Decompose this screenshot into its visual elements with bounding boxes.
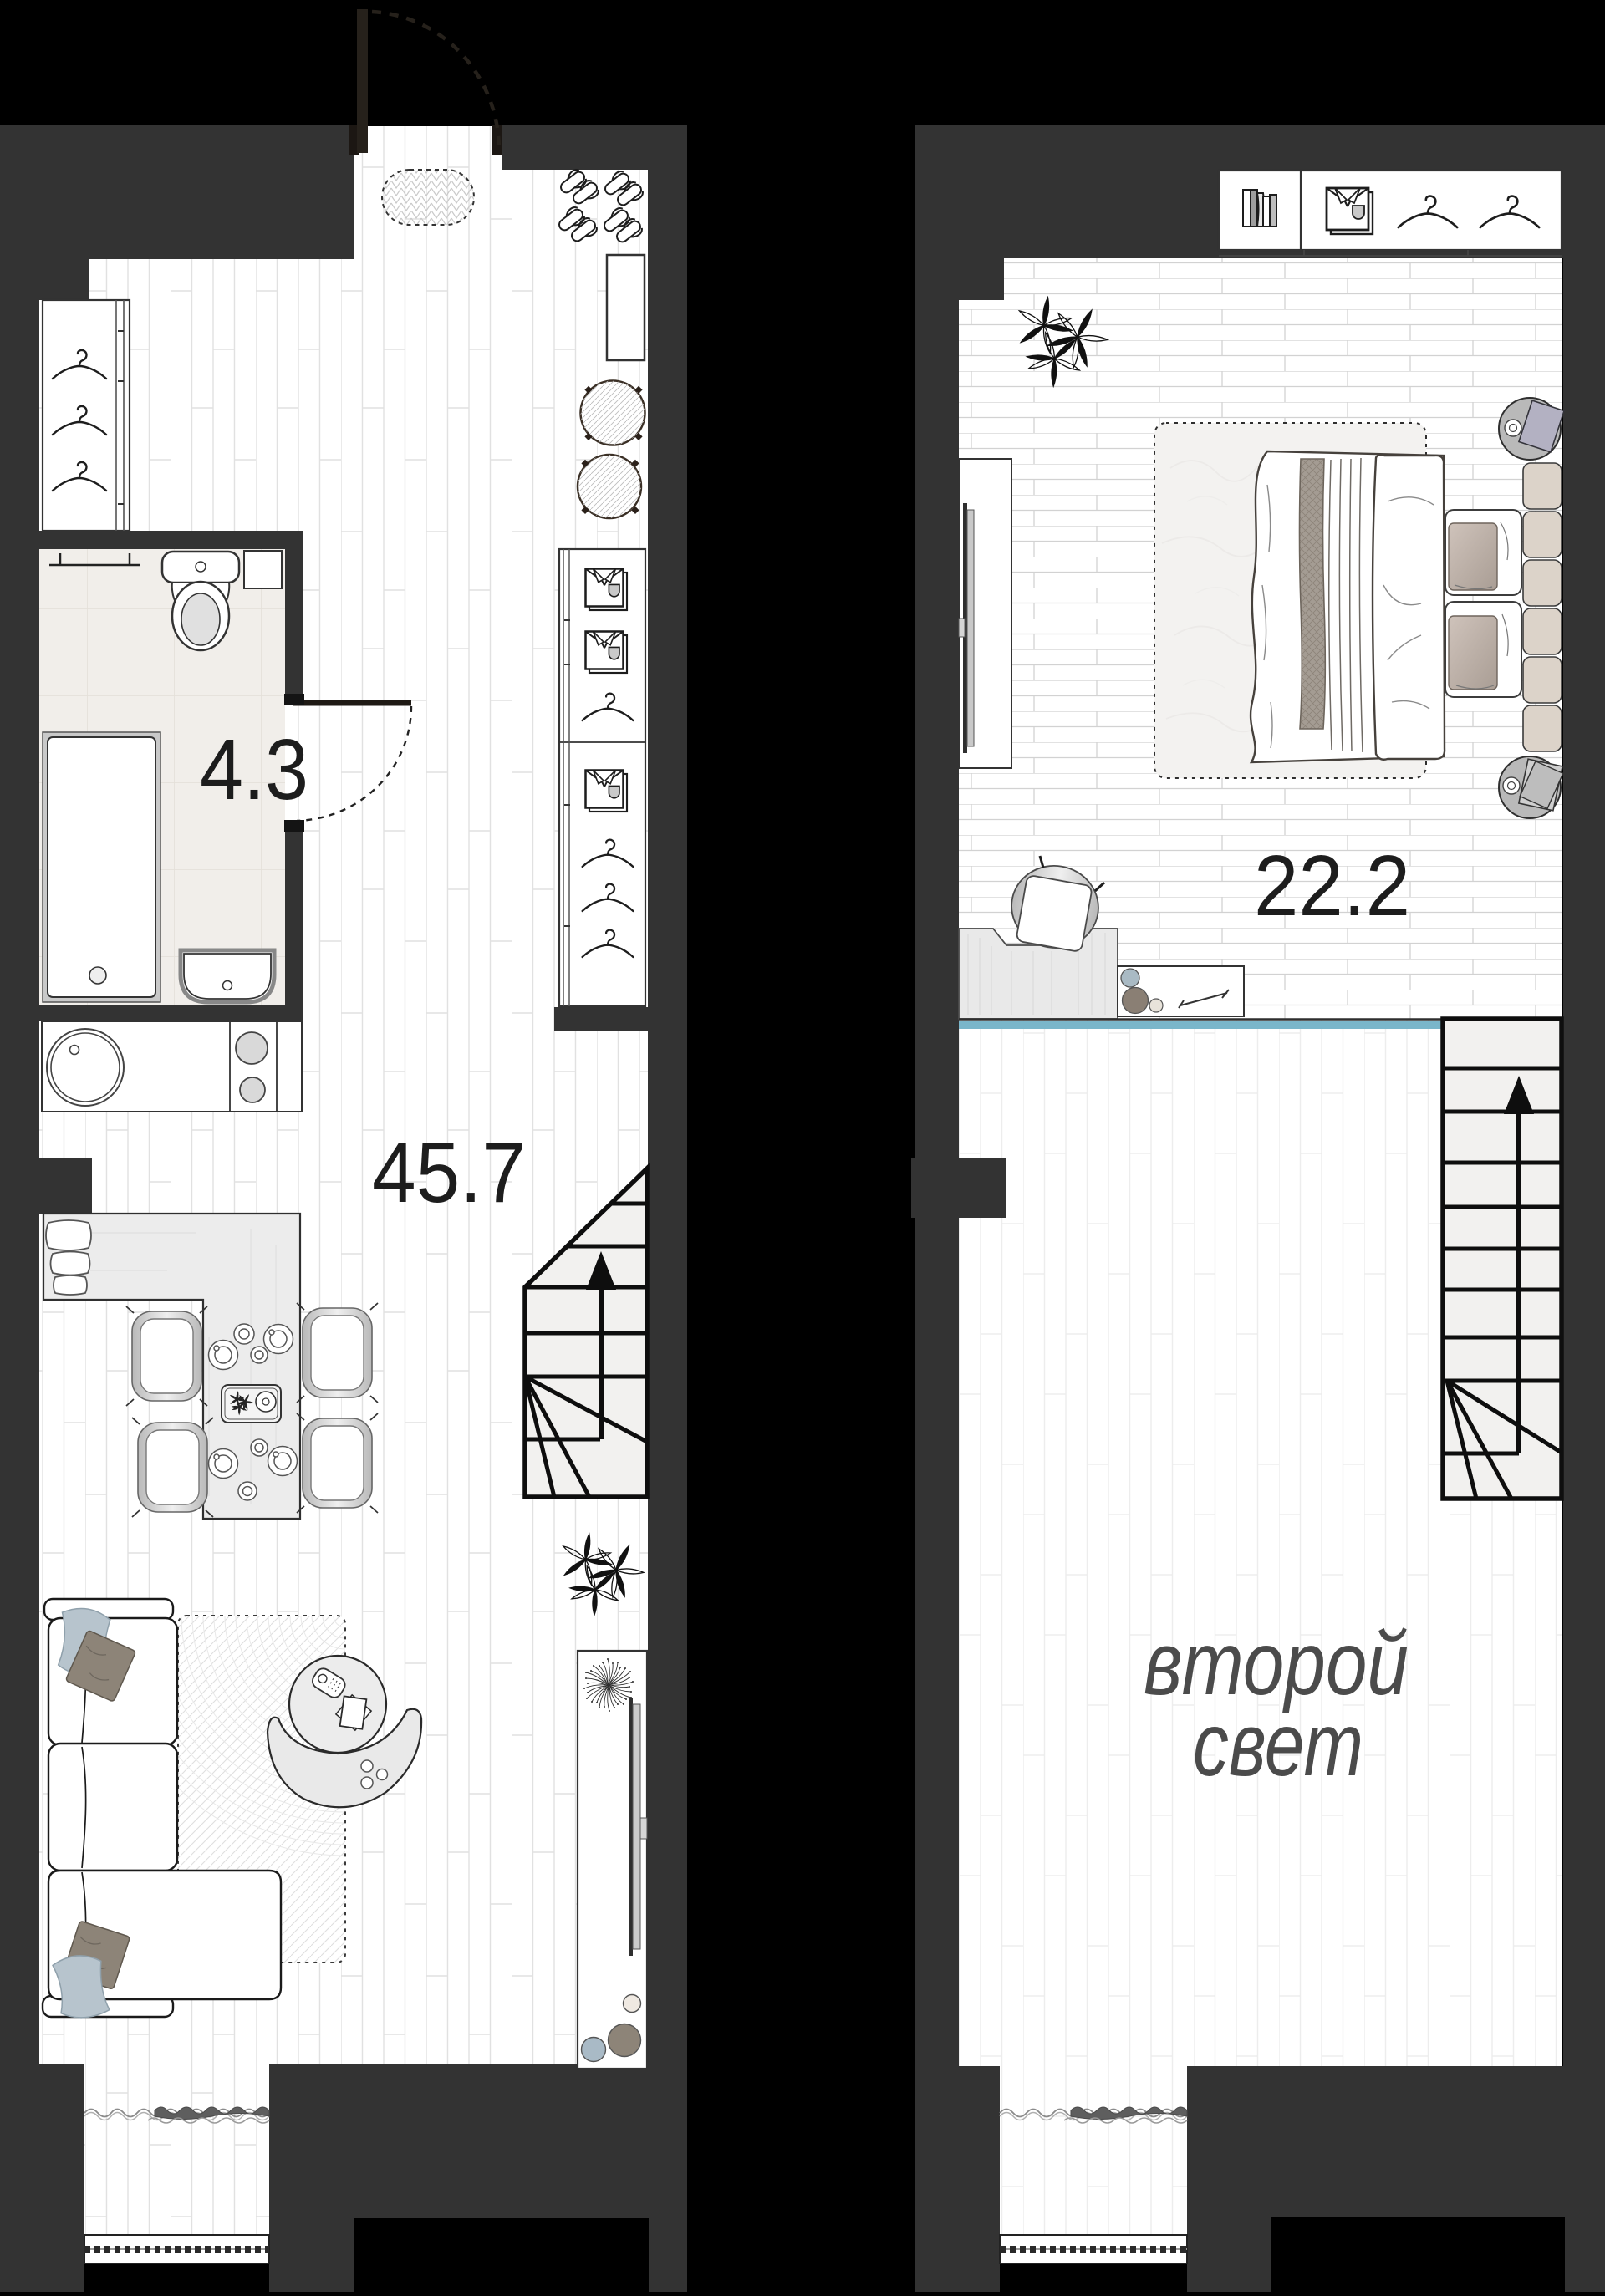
svg-text:свет: свет bbox=[1193, 1693, 1363, 1795]
svg-text:45.7: 45.7 bbox=[372, 1125, 526, 1220]
svg-text:4.3: 4.3 bbox=[200, 721, 308, 817]
svg-text:22.2: 22.2 bbox=[1254, 837, 1410, 934]
